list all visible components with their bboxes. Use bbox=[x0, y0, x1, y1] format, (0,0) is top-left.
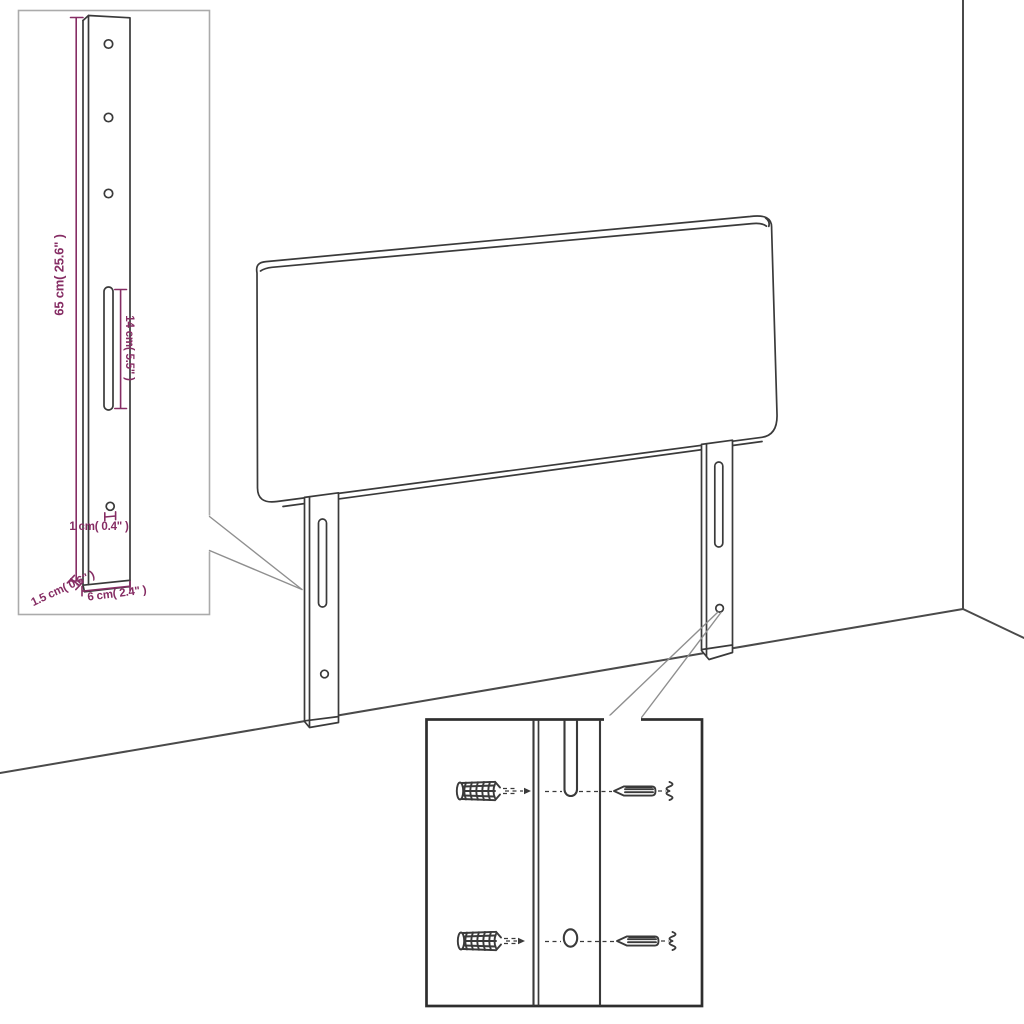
headboard-panel bbox=[257, 216, 777, 507]
left-leg-slot bbox=[319, 519, 327, 607]
dimension-label-bracket-height: 65 cm( 25.6" ) bbox=[52, 234, 67, 315]
right-leg-slot bbox=[715, 462, 723, 547]
right-leg-hole bbox=[716, 605, 724, 613]
dimension-label-slot-length: 14 cm( 5.5" ) bbox=[123, 315, 135, 381]
left-leg-hole bbox=[321, 670, 329, 678]
diagram-line-art bbox=[0, 0, 1024, 1024]
dimension-label-hole-width: 1 cm( 0.4" ) bbox=[69, 521, 128, 533]
left-mounting-leg bbox=[305, 493, 339, 728]
mounting-hardware-inset bbox=[427, 612, 722, 1006]
right-mounting-leg bbox=[702, 440, 733, 659]
headboard-dimension-diagram: 65 cm( 25.6" ) 14 cm( 5.5" ) 1 cm( 0.4" … bbox=[0, 0, 1024, 1024]
